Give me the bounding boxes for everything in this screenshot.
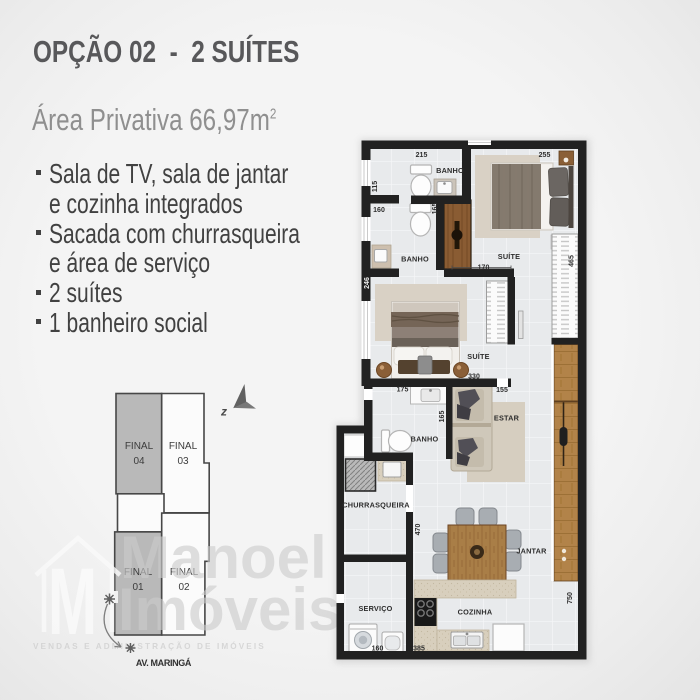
svg-text:170: 170: [478, 265, 490, 272]
svg-text:SUÍTE: SUÍTE: [467, 352, 490, 361]
svg-text:CHURRASQUEIRA: CHURRASQUEIRA: [342, 501, 410, 510]
svg-text:04: 04: [133, 456, 145, 467]
svg-text:VENDAS E ADMINISTRAÇÃO DE IMÓV: VENDAS E ADMINISTRAÇÃO DE IMÓVEIS: [33, 640, 266, 651]
svg-text:FINAL: FINAL: [169, 441, 198, 452]
svg-text:470: 470: [415, 524, 422, 536]
svg-text:165: 165: [432, 203, 439, 215]
svg-text:BANHO: BANHO: [411, 435, 439, 444]
svg-text:ESTAR: ESTAR: [494, 414, 520, 423]
svg-text:160: 160: [372, 646, 384, 653]
svg-text:175: 175: [397, 387, 409, 394]
svg-text:750: 750: [567, 592, 574, 604]
svg-text:SERVIÇO: SERVIÇO: [358, 604, 392, 613]
svg-text:330: 330: [468, 374, 480, 381]
svg-text:BANHO: BANHO: [401, 255, 429, 264]
svg-text:M: M: [48, 547, 97, 654]
svg-text:FINAL: FINAL: [125, 441, 154, 452]
svg-text:160: 160: [373, 207, 385, 214]
svg-text:246: 246: [364, 277, 371, 289]
svg-text:JANTAR: JANTAR: [516, 547, 547, 556]
svg-text:z: z: [220, 405, 227, 419]
svg-text:165: 165: [439, 411, 446, 423]
svg-text:215: 215: [416, 152, 428, 159]
svg-text:255: 255: [539, 152, 551, 159]
svg-text:Imóveis: Imóveis: [118, 576, 341, 643]
svg-text:465: 465: [568, 255, 575, 267]
svg-text:115: 115: [372, 181, 379, 192]
svg-text:BANHO: BANHO: [436, 166, 464, 175]
svg-text:SUÍTE: SUÍTE: [498, 252, 521, 261]
svg-text:AV. MARINGÁ: AV. MARINGÁ: [136, 658, 192, 668]
svg-text:385: 385: [413, 646, 425, 653]
svg-text:COZINHA: COZINHA: [458, 608, 493, 617]
svg-text:03: 03: [177, 456, 189, 467]
svg-text:155: 155: [496, 387, 508, 394]
